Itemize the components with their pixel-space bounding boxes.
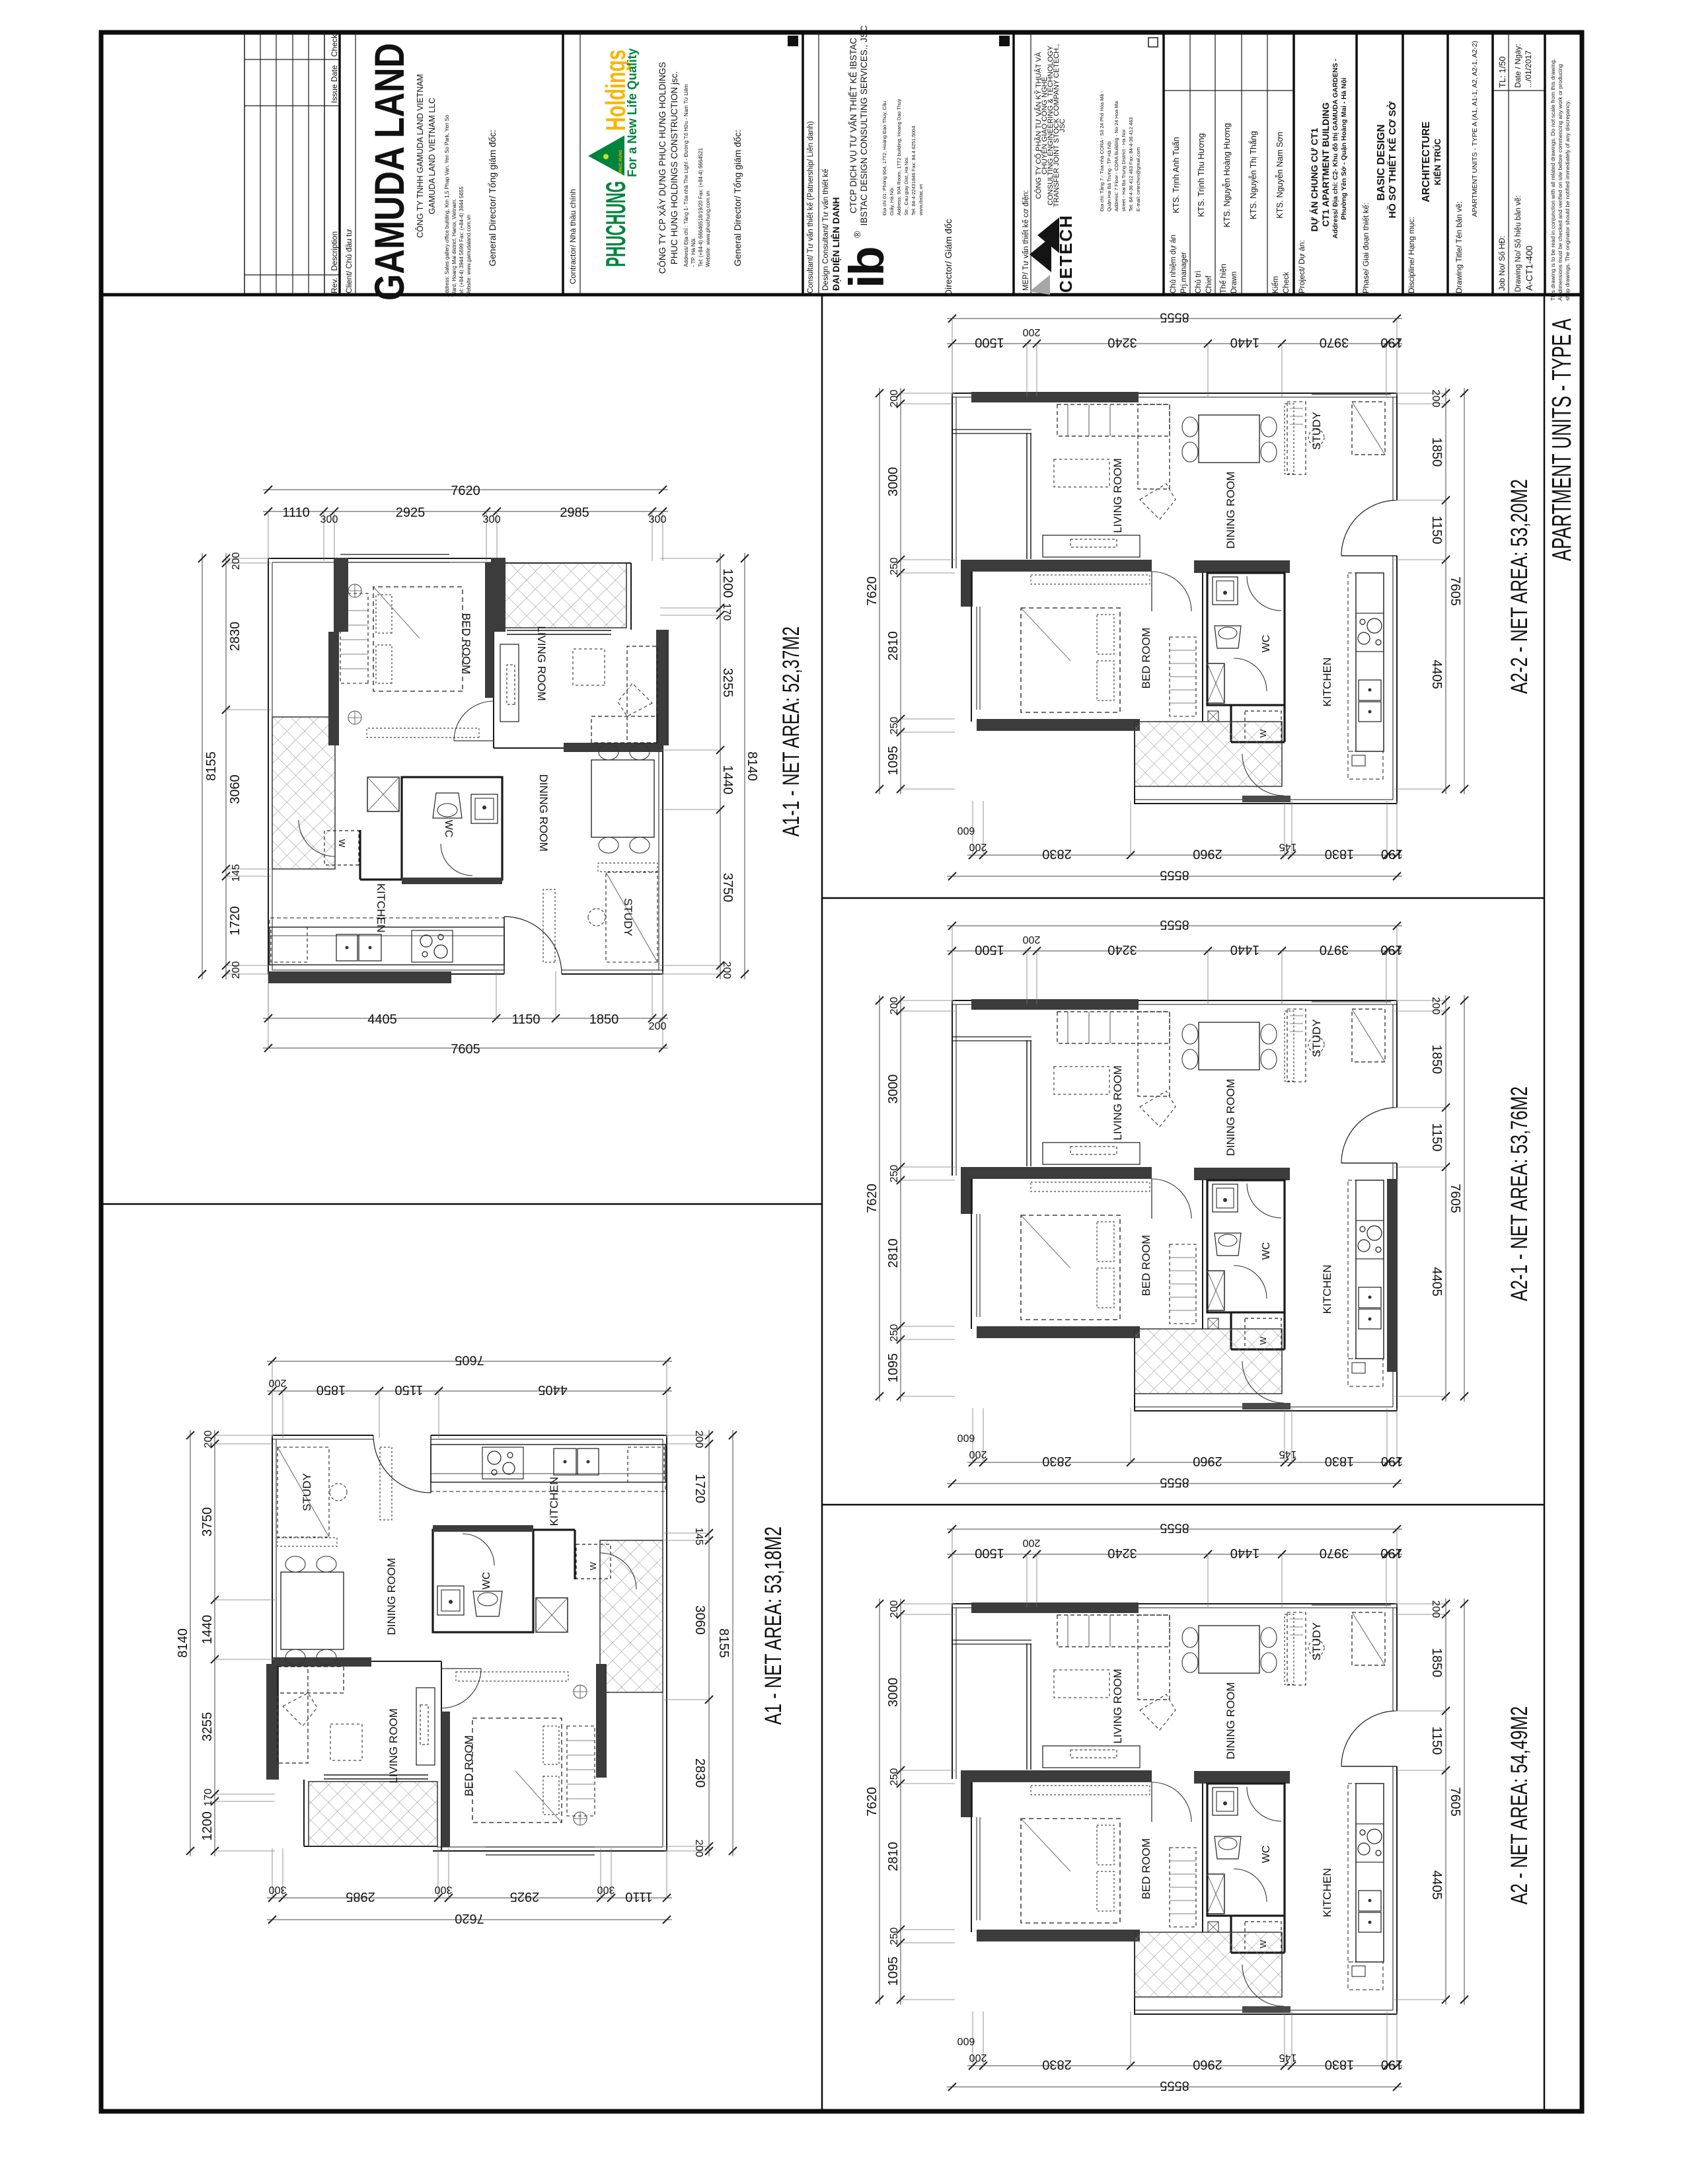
svg-text:Address: Sales gallery office: Address: Sales gallery office building, … bbox=[444, 114, 450, 297]
svg-text:GAMUDA LAND VIETNAM LLC: GAMUDA LAND VIETNAM LLC bbox=[428, 98, 437, 214]
svg-text:Phase/ Giai đoạn thiết kế:: Phase/ Giai đoạn thiết kế: bbox=[1361, 203, 1370, 293]
svg-text:PHUCHUNG: PHUCHUNG bbox=[600, 181, 631, 267]
svg-text:Quận Hai Bà Trưng - TP Hà Nội: Quận Hai Bà Trưng - TP Hà Nội bbox=[1106, 141, 1112, 211]
svg-text:250: 250 bbox=[889, 717, 900, 735]
svg-text:7620: 7620 bbox=[865, 576, 880, 606]
svg-text:KITCHEN: KITCHEN bbox=[1321, 658, 1333, 707]
svg-text:200: 200 bbox=[693, 1431, 704, 1449]
svg-text:8555: 8555 bbox=[1160, 868, 1189, 882]
svg-text:A1-1 - NET AREA: 52,37M2: A1-1 - NET AREA: 52,37M2 bbox=[778, 626, 804, 837]
svg-text:200: 200 bbox=[1023, 326, 1041, 338]
svg-text:Client/ Chủ đầu tư: Client/ Chủ đầu tư bbox=[344, 229, 354, 293]
svg-text:Tel: 84-4-22431846 Fax: 84.: Tel: 84-4-22431846 Fax: 84.4.6251.5004 bbox=[911, 126, 917, 215]
svg-text:LIVING ROOM: LIVING ROOM bbox=[1111, 458, 1124, 533]
svg-text:HỒ SƠ THIẾT KẾ CƠ SỞ: HỒ SƠ THIẾT KẾ CƠ SỞ bbox=[1386, 101, 1398, 218]
svg-text:Contractor/ Nhà thầu chính: Contractor/ Nhà thầu chính bbox=[568, 189, 578, 284]
svg-text:For a New Life Quality: For a New Life Quality bbox=[626, 48, 640, 177]
svg-text:®: ® bbox=[852, 231, 862, 238]
svg-text:KIẾN TRÚC: KIẾN TRÚC bbox=[1433, 138, 1442, 185]
svg-text:1720: 1720 bbox=[693, 1474, 707, 1503]
svg-text:Tel: 84-4-36 412 463 Fax: 84: Tel: 84-4-36 412 463 Fax: 84-4-36 412 46… bbox=[1128, 117, 1134, 211]
svg-text:200: 200 bbox=[1430, 390, 1441, 408]
svg-text:Design Consultant/ Tư vấn thiế: Design Consultant/ Tư vấn thiết kế bbox=[821, 169, 830, 291]
svg-text:CT1 APARTMENT BUILDING: CT1 APARTMENT BUILDING bbox=[1320, 102, 1331, 227]
svg-text:250: 250 bbox=[889, 558, 900, 576]
svg-text:3000: 3000 bbox=[886, 467, 901, 497]
svg-text:Drawing No/ Số hiệu bản vẽ:: Drawing No/ Số hiệu bản vẽ: bbox=[1515, 196, 1522, 292]
svg-text:A2-1 - NET AREA: 53,76M2: A2-1 - NET AREA: 53,76M2 bbox=[1507, 1086, 1532, 1301]
svg-text:1150: 1150 bbox=[394, 1382, 423, 1397]
svg-text:4405: 4405 bbox=[1429, 659, 1444, 689]
svg-text:Ward, Hoang Mai district, Hano: Ward, Hoang Mai district, Hanoi, Vietnam… bbox=[451, 198, 457, 297]
svg-text:A2 - NET AREA: 54,49M2: A2 - NET AREA: 54,49M2 bbox=[1507, 1706, 1532, 1904]
svg-text:LIVING ROOM: LIVING ROOM bbox=[387, 1708, 400, 1783]
svg-text:Kiểm: Kiểm bbox=[1272, 276, 1280, 293]
svg-text:PHUC HUNG HOLDINGS CONSTRUCTIO: PHUC HUNG HOLDINGS CONSTRUCTION jsc. bbox=[669, 71, 679, 265]
svg-text:street - Hai Ba Trung District: street - Hai Ba Trung District - Ha Noi bbox=[1121, 130, 1127, 211]
svg-text:1850: 1850 bbox=[317, 1382, 346, 1397]
svg-text:Address: 904 Room, 17T2 buildi: Address: 904 Room, 17T2 building, Hoang … bbox=[896, 99, 902, 215]
svg-text:ARCHITECTURE: ARCHITECTURE bbox=[1421, 122, 1432, 202]
svg-text:A2-2 - NET AREA: 53,20M2: A2-2 - NET AREA: 53,20M2 bbox=[1507, 479, 1532, 694]
svg-text:DINING ROOM: DINING ROOM bbox=[1224, 471, 1237, 548]
svg-text:Check: Check bbox=[330, 34, 339, 57]
svg-text:Drawing Title/ Tên bản vẽ:: Drawing Title/ Tên bản vẽ: bbox=[1454, 202, 1464, 293]
svg-text:Phường Yên Sở - Quận Hoàng Mai: Phường Yên Sở - Quận Hoàng Mai - Hà Nội bbox=[1340, 77, 1348, 220]
svg-text:7620: 7620 bbox=[455, 1911, 484, 1926]
svg-text:ib: ib bbox=[839, 247, 894, 288]
svg-text:KTS. Trịnh Thu Hương: KTS. Trịnh Thu Hương bbox=[1197, 133, 1206, 217]
svg-text:Date / Ngày:: Date / Ngày: bbox=[1513, 44, 1522, 88]
svg-text:Address/ Địa chỉ: C2- Khu đô t: Address/ Địa chỉ: C2- Khu đô thị GAMUDA … bbox=[1331, 58, 1339, 239]
svg-text:KTS. Nguyễn Thị Thắng: KTS. Nguyễn Thị Thắng bbox=[1248, 131, 1258, 219]
svg-text:- TP. Hà Nội.: - TP. Hà Nội. bbox=[691, 237, 696, 267]
svg-text:200: 200 bbox=[889, 390, 900, 408]
svg-text:2810: 2810 bbox=[886, 631, 901, 661]
svg-text:Chủ trì: Chủ trì bbox=[1195, 270, 1203, 293]
svg-text:1500: 1500 bbox=[975, 335, 1004, 350]
svg-text:Issue Date: Issue Date bbox=[330, 65, 339, 103]
svg-text:2830: 2830 bbox=[1042, 847, 1072, 861]
svg-text:Tel: (+84-4) 66646518/19/20: Tel: (+84-4) 66646518/19/20 Fax: (+84-4)… bbox=[698, 147, 704, 267]
svg-text:3750: 3750 bbox=[200, 1507, 215, 1537]
svg-text:200: 200 bbox=[969, 841, 987, 852]
svg-text:4405: 4405 bbox=[538, 1382, 568, 1397]
svg-text:KTS. Trịnh Anh Tuấn: KTS. Trịnh Anh Tuấn bbox=[1172, 137, 1181, 213]
svg-text:www.ibstac.vn: www.ibstac.vn bbox=[918, 184, 924, 216]
svg-text:Drawn: Drawn bbox=[1230, 272, 1238, 293]
svg-text:CÔNG TY CP XÂY DỰNG PHỤC HƯNG: CÔNG TY CP XÂY DỰNG PHỤC HƯNG HOLDINGS bbox=[657, 62, 667, 274]
svg-text:Director/ Giám đốc: Director/ Giám đốc bbox=[943, 219, 954, 296]
svg-text:KTS. Nguyễn Nam Sơn: KTS. Nguyễn Nam Sơn bbox=[1275, 132, 1285, 218]
svg-text:1440: 1440 bbox=[1230, 335, 1260, 350]
svg-text:TL: 1/50: TL: 1/50 bbox=[1497, 56, 1507, 88]
svg-text:2830: 2830 bbox=[693, 1758, 707, 1788]
svg-text:145: 145 bbox=[693, 1528, 704, 1546]
svg-text:Rev.: Rev. bbox=[330, 278, 339, 293]
svg-text:This drawing is to be read in: This drawing is to be read in conjunctio… bbox=[1550, 59, 1556, 301]
svg-text:8140: 8140 bbox=[176, 1628, 190, 1658]
svg-text:WC: WC bbox=[1261, 635, 1272, 653]
svg-text:3060: 3060 bbox=[693, 1605, 707, 1635]
svg-text:DỰ ÁN CHUNG CƯ CT1: DỰ ÁN CHUNG CƯ CT1 bbox=[1309, 128, 1320, 231]
svg-text:GAMUDA LAND: GAMUDA LAND bbox=[367, 43, 413, 301]
svg-text:200: 200 bbox=[203, 1431, 214, 1449]
svg-text:600: 600 bbox=[957, 825, 975, 836]
svg-text:Thể hiện: Thể hiện bbox=[1220, 264, 1228, 293]
svg-text:1150: 1150 bbox=[1429, 515, 1444, 544]
svg-text:.../01/2017: .../01/2017 bbox=[1524, 50, 1533, 88]
svg-text:170: 170 bbox=[203, 1789, 214, 1807]
svg-text:STUDY: STUDY bbox=[301, 1473, 313, 1511]
svg-text:KITCHEN: KITCHEN bbox=[548, 1477, 560, 1526]
svg-text:APARTMENT UNITS - TYPE A (A1,: APARTMENT UNITS - TYPE A (A1, A1-1, A2, … bbox=[1471, 41, 1479, 217]
svg-text:1440: 1440 bbox=[200, 1615, 215, 1645]
svg-text:Str., Cau giay Dist, Ha Noi.: Str., Cau giay Dist, Ha Noi. bbox=[903, 157, 909, 215]
svg-text:Giấy, Hà Nội: Giấy, Hà Nội bbox=[889, 188, 895, 215]
svg-text:200: 200 bbox=[269, 1377, 287, 1388]
svg-text:190: 190 bbox=[1381, 847, 1403, 861]
svg-text:Consultant/ Tư vấn thiết kế (P: Consultant/ Tư vấn thiết kế (Patnership/… bbox=[807, 121, 815, 293]
svg-text:Địa chỉ 01: Phòng 904, 17T2, H: Địa chỉ 01: Phòng 904, 17T2, Hoàng Đạo T… bbox=[881, 101, 887, 215]
svg-text:Website: www.phuchung.com.vn: Website: www.phuchung.com.vn bbox=[705, 191, 711, 267]
svg-text:Chủ nhiệm dự án: Chủ nhiệm dự án bbox=[1170, 235, 1178, 293]
svg-text:2960: 2960 bbox=[1193, 847, 1222, 861]
svg-text:CÔNG TY TNHH GAMUDA LAND VIETN: CÔNG TY TNHH GAMUDA LAND VIETNAM bbox=[415, 74, 425, 238]
svg-text:All dimensions must be checked: All dimensions must be checked and verif… bbox=[1557, 64, 1563, 301]
svg-text:W: W bbox=[588, 1562, 598, 1570]
svg-text:1200: 1200 bbox=[200, 1811, 215, 1841]
svg-text:Tel: (+84-4) 3944 5699: Tel: (+84-4) 3944 5699 Fax: (+84-4) 3944… bbox=[459, 186, 465, 297]
svg-text:Check: Check bbox=[1283, 272, 1291, 293]
svg-text:DINING ROOM: DINING ROOM bbox=[385, 1558, 398, 1635]
svg-text:2925: 2925 bbox=[510, 1889, 540, 1904]
svg-text:General Director/ Tổng giám đố: General Director/ Tổng giám đốc: bbox=[732, 130, 743, 266]
svg-text:General Director/ Tổng giám đố: General Director/ Tổng giám đốc: bbox=[487, 130, 498, 266]
svg-text:145: 145 bbox=[1279, 841, 1297, 852]
svg-text:1850: 1850 bbox=[1429, 437, 1444, 467]
svg-text:1110: 1110 bbox=[625, 1889, 653, 1904]
svg-text:3240: 3240 bbox=[1107, 335, 1137, 350]
svg-text:200: 200 bbox=[693, 1840, 704, 1858]
svg-text:shop drawings. The originator: shop drawings. The originator should be … bbox=[1564, 100, 1571, 301]
svg-text:A-CT1-400: A-CT1-400 bbox=[1524, 245, 1534, 291]
svg-text:Address/ Địa chỉ : Tầng 1- Tòa: Address/ Địa chỉ : Tầng 1- Tòa nhà The L… bbox=[683, 84, 689, 267]
svg-text:A1 - NET AREA: 53,18M2: A1 - NET AREA: 53,18M2 bbox=[761, 1526, 786, 1725]
svg-text:1830: 1830 bbox=[1325, 847, 1355, 861]
svg-text:Website: www.gamudaland.com.vn: Website: www.gamudaland.com.vn bbox=[466, 215, 472, 297]
svg-text:JSC: JSC bbox=[1059, 119, 1067, 133]
svg-text:BED ROOM: BED ROOM bbox=[1140, 628, 1152, 689]
svg-text:Chief: Chief bbox=[1205, 275, 1213, 293]
svg-text:WC: WC bbox=[481, 1572, 492, 1590]
svg-text:300: 300 bbox=[269, 1884, 287, 1895]
svg-text:Address: 7 Floor - CORA B: Address: 7 Floor - CORA Building - No 24… bbox=[1113, 100, 1119, 211]
svg-text:Description: Description bbox=[330, 231, 339, 271]
svg-text:E-mail: cetechvn@gmail.com: E-mail: cetechvn@gmail.com bbox=[1135, 147, 1141, 211]
svg-text:190: 190 bbox=[1380, 335, 1402, 350]
svg-text:BED ROOM: BED ROOM bbox=[463, 1735, 475, 1797]
svg-text:PHUC HUNG: PHUC HUNG bbox=[619, 149, 623, 174]
svg-text:MEP/ Tư vấn thiết kế cơ điện:: MEP/ Tư vấn thiết kế cơ điện: bbox=[1022, 190, 1030, 291]
svg-text:Project/ Dự án:: Project/ Dự án: bbox=[1297, 240, 1306, 293]
svg-text:7605: 7605 bbox=[1448, 576, 1462, 606]
svg-text:7605: 7605 bbox=[455, 1353, 484, 1367]
svg-text:Địa chỉ: Tầng 7 - Tòa nhà CORA: Địa chỉ: Tầng 7 - Tòa nhà CORA - Số 24 P… bbox=[1099, 91, 1105, 211]
svg-text:BASIC DESIGN: BASIC DESIGN bbox=[1376, 124, 1387, 201]
svg-text:300: 300 bbox=[435, 1884, 453, 1895]
svg-text:300: 300 bbox=[597, 1884, 615, 1895]
svg-text:8555: 8555 bbox=[1160, 310, 1189, 324]
svg-text:APARTMENT UNITS - TYPE A: APARTMENT UNITS - TYPE A bbox=[1546, 319, 1577, 561]
svg-text:STUDY: STUDY bbox=[1310, 412, 1323, 450]
svg-text:KTS. Nguyễn Hoàng Hương: KTS. Nguyễn Hoàng Hương bbox=[1222, 123, 1232, 227]
svg-text:CETECH: CETECH bbox=[1056, 214, 1076, 293]
svg-text:CTCP DỊCH VỤ TƯ VẤN THIẾT KẾ I: CTCP DỊCH VỤ TƯ VẤN THIẾT KẾ IBSTAC bbox=[848, 38, 858, 213]
svg-text:8155: 8155 bbox=[716, 1628, 731, 1658]
svg-text:2985: 2985 bbox=[346, 1889, 375, 1904]
svg-text:3255: 3255 bbox=[200, 1712, 215, 1742]
svg-text:Job No/ Số HĐ:: Job No/ Số HĐ: bbox=[1497, 236, 1507, 291]
svg-text:IBSTAC DESIGN CONSULTING SERVI: IBSTAC DESIGN CONSULTING SERVICES., JSC bbox=[859, 25, 869, 225]
svg-text:1095: 1095 bbox=[886, 746, 901, 776]
svg-text:Discipline/ Hạng mục:: Discipline/ Hạng mục: bbox=[1407, 217, 1416, 293]
svg-text:Prj.manager: Prj.manager bbox=[1180, 252, 1188, 293]
svg-text:3970: 3970 bbox=[1320, 335, 1349, 350]
